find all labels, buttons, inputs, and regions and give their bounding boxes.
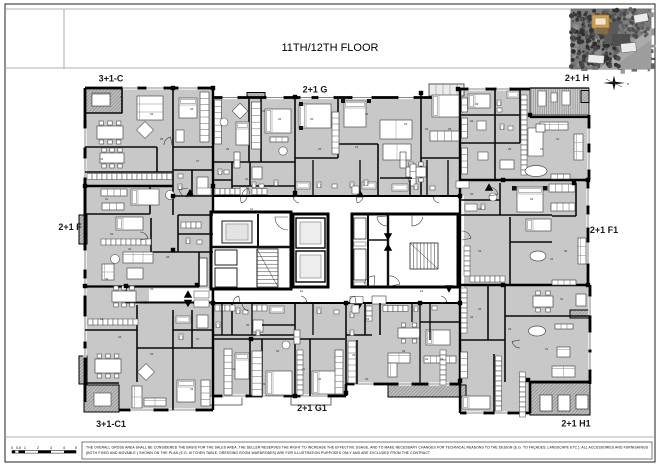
svg-text:3: 3: [50, 446, 52, 450]
svg-text:03: 03: [150, 287, 154, 291]
svg-text:5: 5: [75, 446, 77, 450]
svg-text:e: e: [627, 82, 629, 86]
svg-text:2+1 H: 2+1 H: [565, 73, 589, 83]
svg-text:03: 03: [352, 353, 356, 357]
svg-text:04: 04: [478, 207, 482, 211]
svg-text:01: 01: [120, 95, 124, 99]
svg-text:2+1 H1: 2+1 H1: [561, 419, 590, 429]
svg-text:3+1-C: 3+1-C: [99, 74, 124, 84]
svg-text:01: 01: [245, 177, 249, 181]
svg-text:05: 05: [160, 137, 164, 141]
svg-text:03: 03: [190, 387, 194, 391]
svg-text:03: 03: [365, 112, 369, 116]
svg-text:04: 04: [478, 307, 482, 311]
svg-text:11TH/12TH FLOOR: 11TH/12TH FLOOR: [282, 42, 379, 54]
svg-text:02: 02: [128, 247, 132, 251]
svg-text:01: 01: [556, 137, 560, 141]
svg-text:07: 07: [196, 337, 200, 341]
svg-text:02: 02: [402, 349, 406, 353]
svg-text:05: 05: [246, 323, 250, 327]
svg-text:01: 01: [545, 347, 549, 351]
svg-text:0: 0: [11, 446, 13, 450]
svg-text:(BOTH FIXED AND MOVABLE ) SHOW: (BOTH FIXED AND MOVABLE ) SHOWN ON THE P…: [86, 451, 430, 455]
svg-text:04: 04: [278, 117, 282, 121]
svg-text:04: 04: [404, 122, 408, 126]
svg-text:01: 01: [105, 197, 109, 201]
svg-text:2+1 G: 2+1 G: [303, 85, 328, 95]
svg-text:04: 04: [276, 349, 280, 353]
svg-text:01: 01: [550, 257, 554, 261]
svg-text:3+1-C1: 3+1-C1: [96, 419, 126, 429]
svg-text:06: 06: [166, 255, 170, 259]
svg-text:03: 03: [475, 102, 479, 106]
svg-text:2: 2: [37, 446, 39, 450]
svg-text:06: 06: [470, 192, 474, 196]
svg-text:04: 04: [508, 327, 512, 331]
svg-text:k1: k1: [250, 207, 254, 211]
svg-text:01: 01: [560, 297, 564, 301]
svg-text:02: 02: [150, 112, 154, 116]
svg-text:04: 04: [440, 357, 444, 361]
svg-text:03: 03: [190, 107, 194, 111]
svg-text:03: 03: [365, 377, 369, 381]
svg-text:03: 03: [478, 249, 482, 253]
svg-text:02: 02: [530, 197, 534, 201]
svg-text:1: 1: [24, 446, 26, 450]
svg-text:03: 03: [366, 317, 370, 321]
svg-text:k2: k2: [300, 289, 304, 293]
svg-text:THE OVERALL GROSS AREA SHALL B: THE OVERALL GROSS AREA SHALL BE CONSIDER…: [86, 445, 649, 449]
svg-text:01: 01: [302, 367, 306, 371]
svg-text:03: 03: [318, 147, 322, 151]
svg-text:04: 04: [105, 277, 109, 281]
svg-text:01: 01: [355, 145, 359, 149]
svg-text:02: 02: [318, 377, 322, 381]
svg-text:04: 04: [100, 157, 104, 161]
svg-text:2+1 F1: 2+1 F1: [590, 225, 618, 235]
svg-text:05: 05: [448, 127, 452, 131]
svg-text:2+1 F: 2+1 F: [58, 222, 82, 232]
svg-text:04: 04: [118, 335, 122, 339]
svg-text:02: 02: [425, 127, 429, 131]
svg-text:01: 01: [540, 147, 544, 151]
svg-text:4: 4: [63, 446, 65, 450]
svg-text:03: 03: [262, 382, 266, 386]
svg-text:0.5: 0.5: [16, 446, 21, 450]
svg-text:07: 07: [196, 159, 200, 163]
svg-text:01: 01: [100, 317, 104, 321]
svg-text:02: 02: [470, 119, 474, 123]
svg-text:05: 05: [564, 249, 568, 253]
svg-text:02: 02: [310, 117, 314, 121]
svg-text:02: 02: [226, 147, 230, 151]
svg-text:02: 02: [470, 315, 474, 319]
svg-text:02: 02: [232, 367, 236, 371]
svg-text:03: 03: [508, 147, 512, 151]
svg-text:02: 02: [425, 357, 429, 361]
svg-text:03: 03: [262, 109, 266, 113]
svg-text:k3: k3: [420, 289, 424, 293]
svg-text:2+1 G1: 2+1 G1: [297, 403, 327, 413]
svg-text:02: 02: [150, 352, 154, 356]
svg-text:02: 02: [110, 232, 114, 236]
